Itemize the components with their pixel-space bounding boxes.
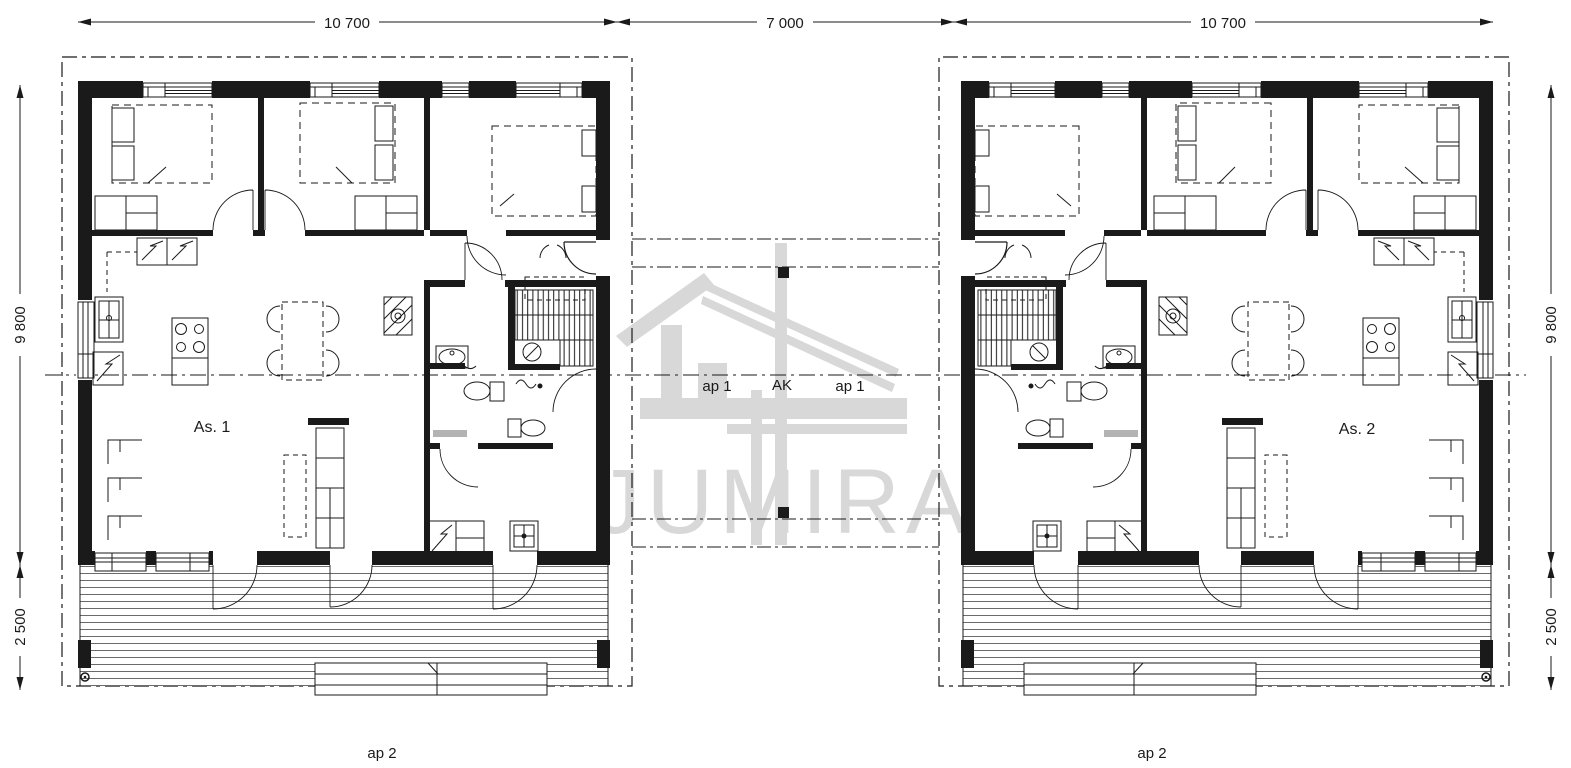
logo-bar-1 xyxy=(640,398,907,419)
carport-post xyxy=(778,267,789,278)
logo-wall xyxy=(661,325,682,407)
floorplan-canvas: JUMIRA xyxy=(0,0,1571,768)
dim-right-main: 9 800 xyxy=(1543,306,1560,344)
watermark-text: JUMIRA xyxy=(595,451,973,553)
building-apartment-2 xyxy=(939,57,1509,695)
dim-top-left: 10 700 xyxy=(324,15,370,32)
floorplan-page: JUMIRA xyxy=(0,0,1571,768)
dim-top-right: 10 700 xyxy=(1200,15,1246,32)
dim-left-main: 9 800 xyxy=(12,306,29,344)
carport-post xyxy=(778,507,789,518)
dim-left-deck: 2 500 xyxy=(12,608,29,646)
label-apartment-2: As. 2 xyxy=(1339,421,1376,438)
label-carport-space-right: ap 1 xyxy=(835,378,864,395)
label-apartment-1: As. 1 xyxy=(194,419,231,436)
label-parking-bottom-left: ap 2 xyxy=(367,745,396,762)
label-carport-space-left: ap 1 xyxy=(702,378,731,395)
watermark-logo: JUMIRA xyxy=(595,243,973,553)
logo-roof-right xyxy=(703,281,899,377)
label-carport: AK xyxy=(772,377,792,394)
dim-right-deck: 2 500 xyxy=(1543,608,1560,646)
dim-top-center: 7 000 xyxy=(766,15,804,32)
label-parking-bottom-right: ap 2 xyxy=(1137,745,1166,762)
building-apartment-1 xyxy=(62,57,632,695)
